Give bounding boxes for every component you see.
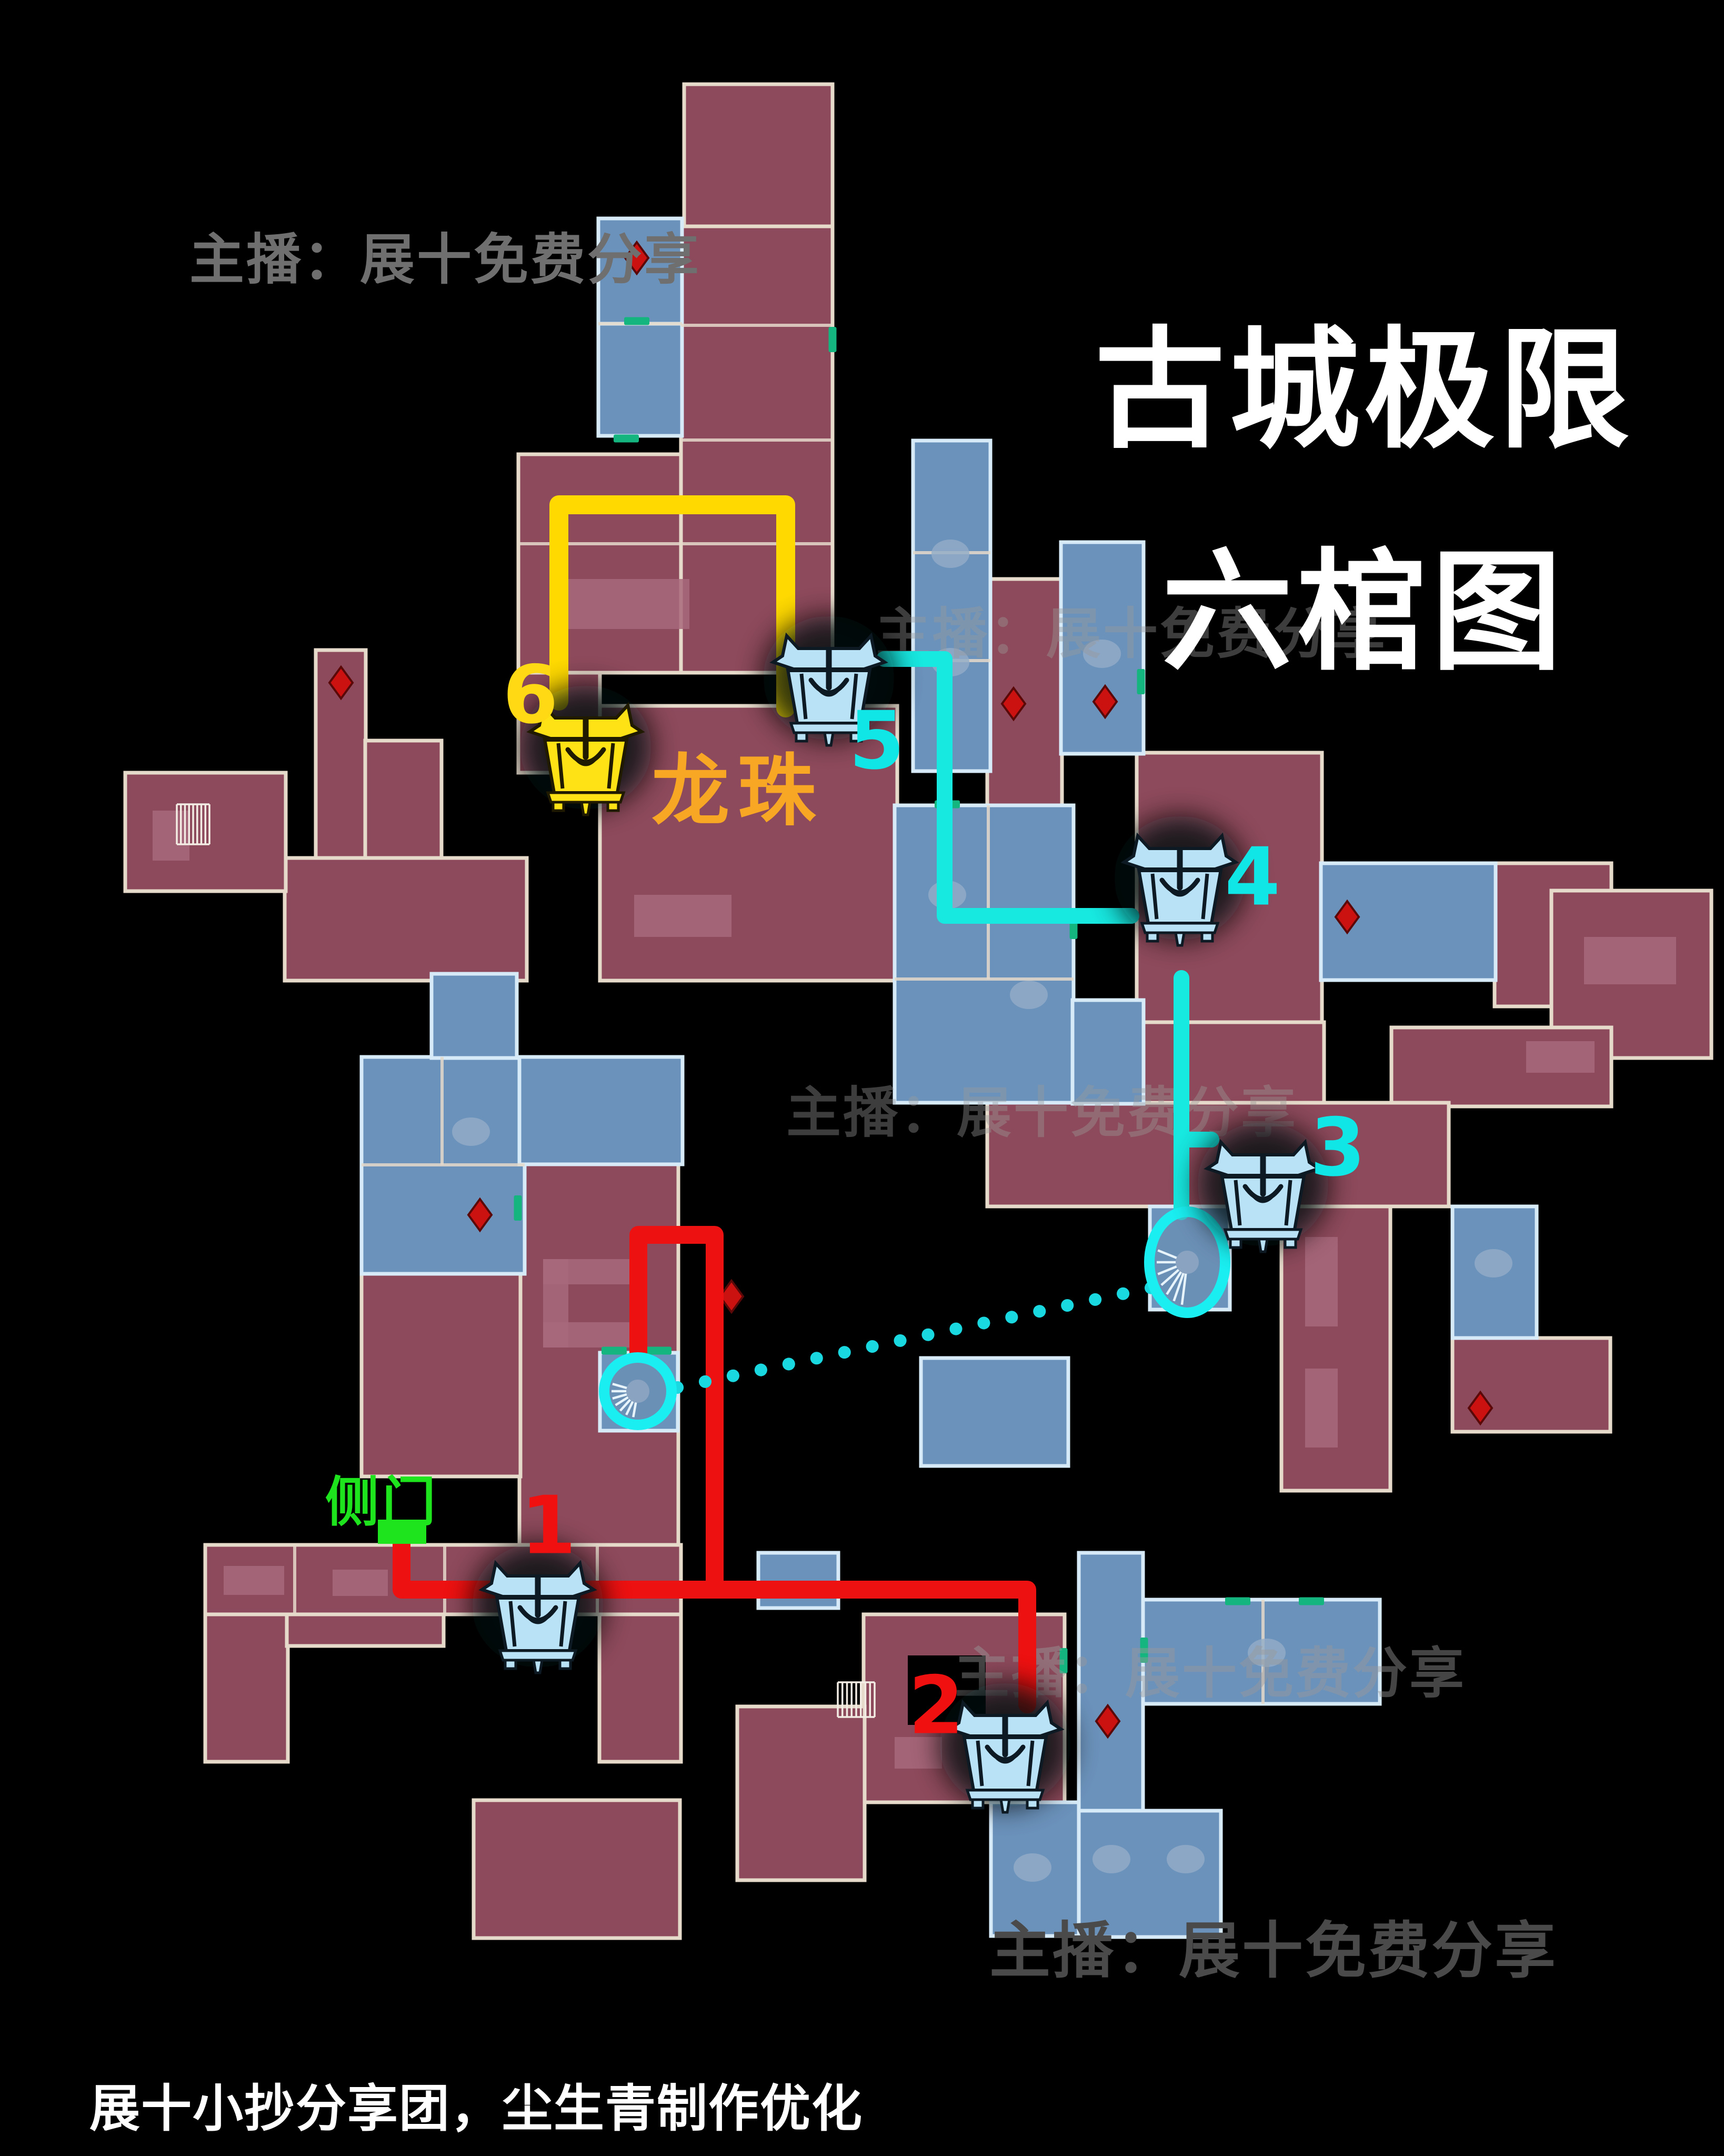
watermark-mid: 主播：展十免费分享 bbox=[786, 1081, 1298, 1145]
dragon-pearl-label: 龙珠 bbox=[651, 727, 824, 841]
map-room-red bbox=[684, 84, 833, 226]
map-room-red bbox=[365, 741, 442, 859]
watermark-bottom: 主播：展十免费分享 bbox=[989, 1901, 1558, 1990]
route-number-3: 3 bbox=[1310, 1101, 1366, 1194]
map-room-red bbox=[737, 1706, 865, 1880]
route-number-1: 1 bbox=[520, 1479, 576, 1572]
spiral-staircase-icon bbox=[1149, 1212, 1225, 1313]
page-title-line2: 六棺图 bbox=[1085, 506, 1643, 695]
door-marker bbox=[602, 1347, 627, 1355]
door-marker bbox=[514, 1195, 522, 1221]
side-door-label: 侧门 bbox=[325, 1459, 439, 1536]
floor-oval-decor bbox=[1092, 1845, 1130, 1873]
floor-oval-decor bbox=[452, 1117, 490, 1146]
map-room-blue bbox=[758, 1553, 838, 1608]
watermark-top: 主播：展十免费分享 bbox=[189, 215, 701, 294]
page-title-line1: 古城极限 bbox=[1085, 284, 1643, 473]
spiral-staircase-icon bbox=[604, 1358, 671, 1425]
route-number-4: 4 bbox=[1225, 831, 1280, 924]
stairs-icon bbox=[177, 804, 209, 844]
map-room-red bbox=[285, 858, 527, 981]
door-marker bbox=[829, 327, 837, 352]
map-room-red bbox=[599, 1614, 681, 1762]
rug-decor bbox=[1526, 1041, 1595, 1073]
map-room-red bbox=[287, 1614, 444, 1646]
rug-decor bbox=[558, 579, 689, 629]
door-marker bbox=[624, 317, 649, 325]
rug-decor bbox=[333, 1570, 388, 1596]
rug-decor bbox=[224, 1566, 284, 1595]
route-number-6: 6 bbox=[503, 648, 558, 742]
map-room-blue bbox=[519, 1057, 683, 1164]
map-room-red bbox=[518, 454, 681, 673]
door-marker bbox=[646, 1347, 671, 1355]
stairs-icon bbox=[838, 1682, 875, 1717]
map-room-red bbox=[681, 226, 833, 673]
floor-oval-decor bbox=[1475, 1249, 1512, 1277]
door-marker bbox=[1299, 1598, 1324, 1605]
rug-decor bbox=[1584, 937, 1676, 984]
route-path-cyan-dotted bbox=[677, 1287, 1152, 1388]
floor-oval-decor bbox=[1014, 1853, 1051, 1882]
map-guide-image: 主播：展十免费分享主播：展十免费分享主播：展十免费分享123456 主播：展十免… bbox=[0, 0, 1724, 2156]
map-room-red bbox=[362, 1273, 520, 1476]
map-room-red bbox=[474, 1800, 680, 1938]
staircase-center bbox=[1176, 1251, 1199, 1274]
rug-decor bbox=[153, 811, 189, 861]
staircase-center bbox=[626, 1380, 649, 1403]
rug-decor bbox=[1305, 1369, 1338, 1448]
floor-oval-decor bbox=[1010, 981, 1048, 1009]
floor-oval-decor bbox=[1167, 1845, 1205, 1873]
map-room-blue bbox=[598, 324, 682, 436]
route-number-2: 2 bbox=[908, 1659, 964, 1752]
rug-decor bbox=[543, 1322, 639, 1347]
map-room-blue bbox=[921, 1358, 1068, 1466]
route-number-5: 5 bbox=[849, 694, 905, 787]
coffin-base bbox=[500, 1651, 576, 1673]
door-marker bbox=[1225, 1598, 1250, 1605]
door-marker bbox=[614, 435, 639, 443]
rug-decor bbox=[634, 895, 731, 937]
credit-text: 展十小抄分享团，尘生青制作优化 bbox=[89, 2068, 863, 2141]
map-room-blue bbox=[432, 974, 517, 1058]
map-room-red bbox=[205, 1614, 288, 1762]
floor-oval-decor bbox=[931, 540, 969, 568]
coffin-base bbox=[1142, 923, 1218, 945]
rug-decor bbox=[1305, 1237, 1338, 1326]
map-room-blue bbox=[895, 805, 1074, 1103]
coffin-base bbox=[548, 793, 624, 815]
coffin-base bbox=[967, 1790, 1043, 1812]
coffin-base bbox=[1225, 1230, 1301, 1252]
